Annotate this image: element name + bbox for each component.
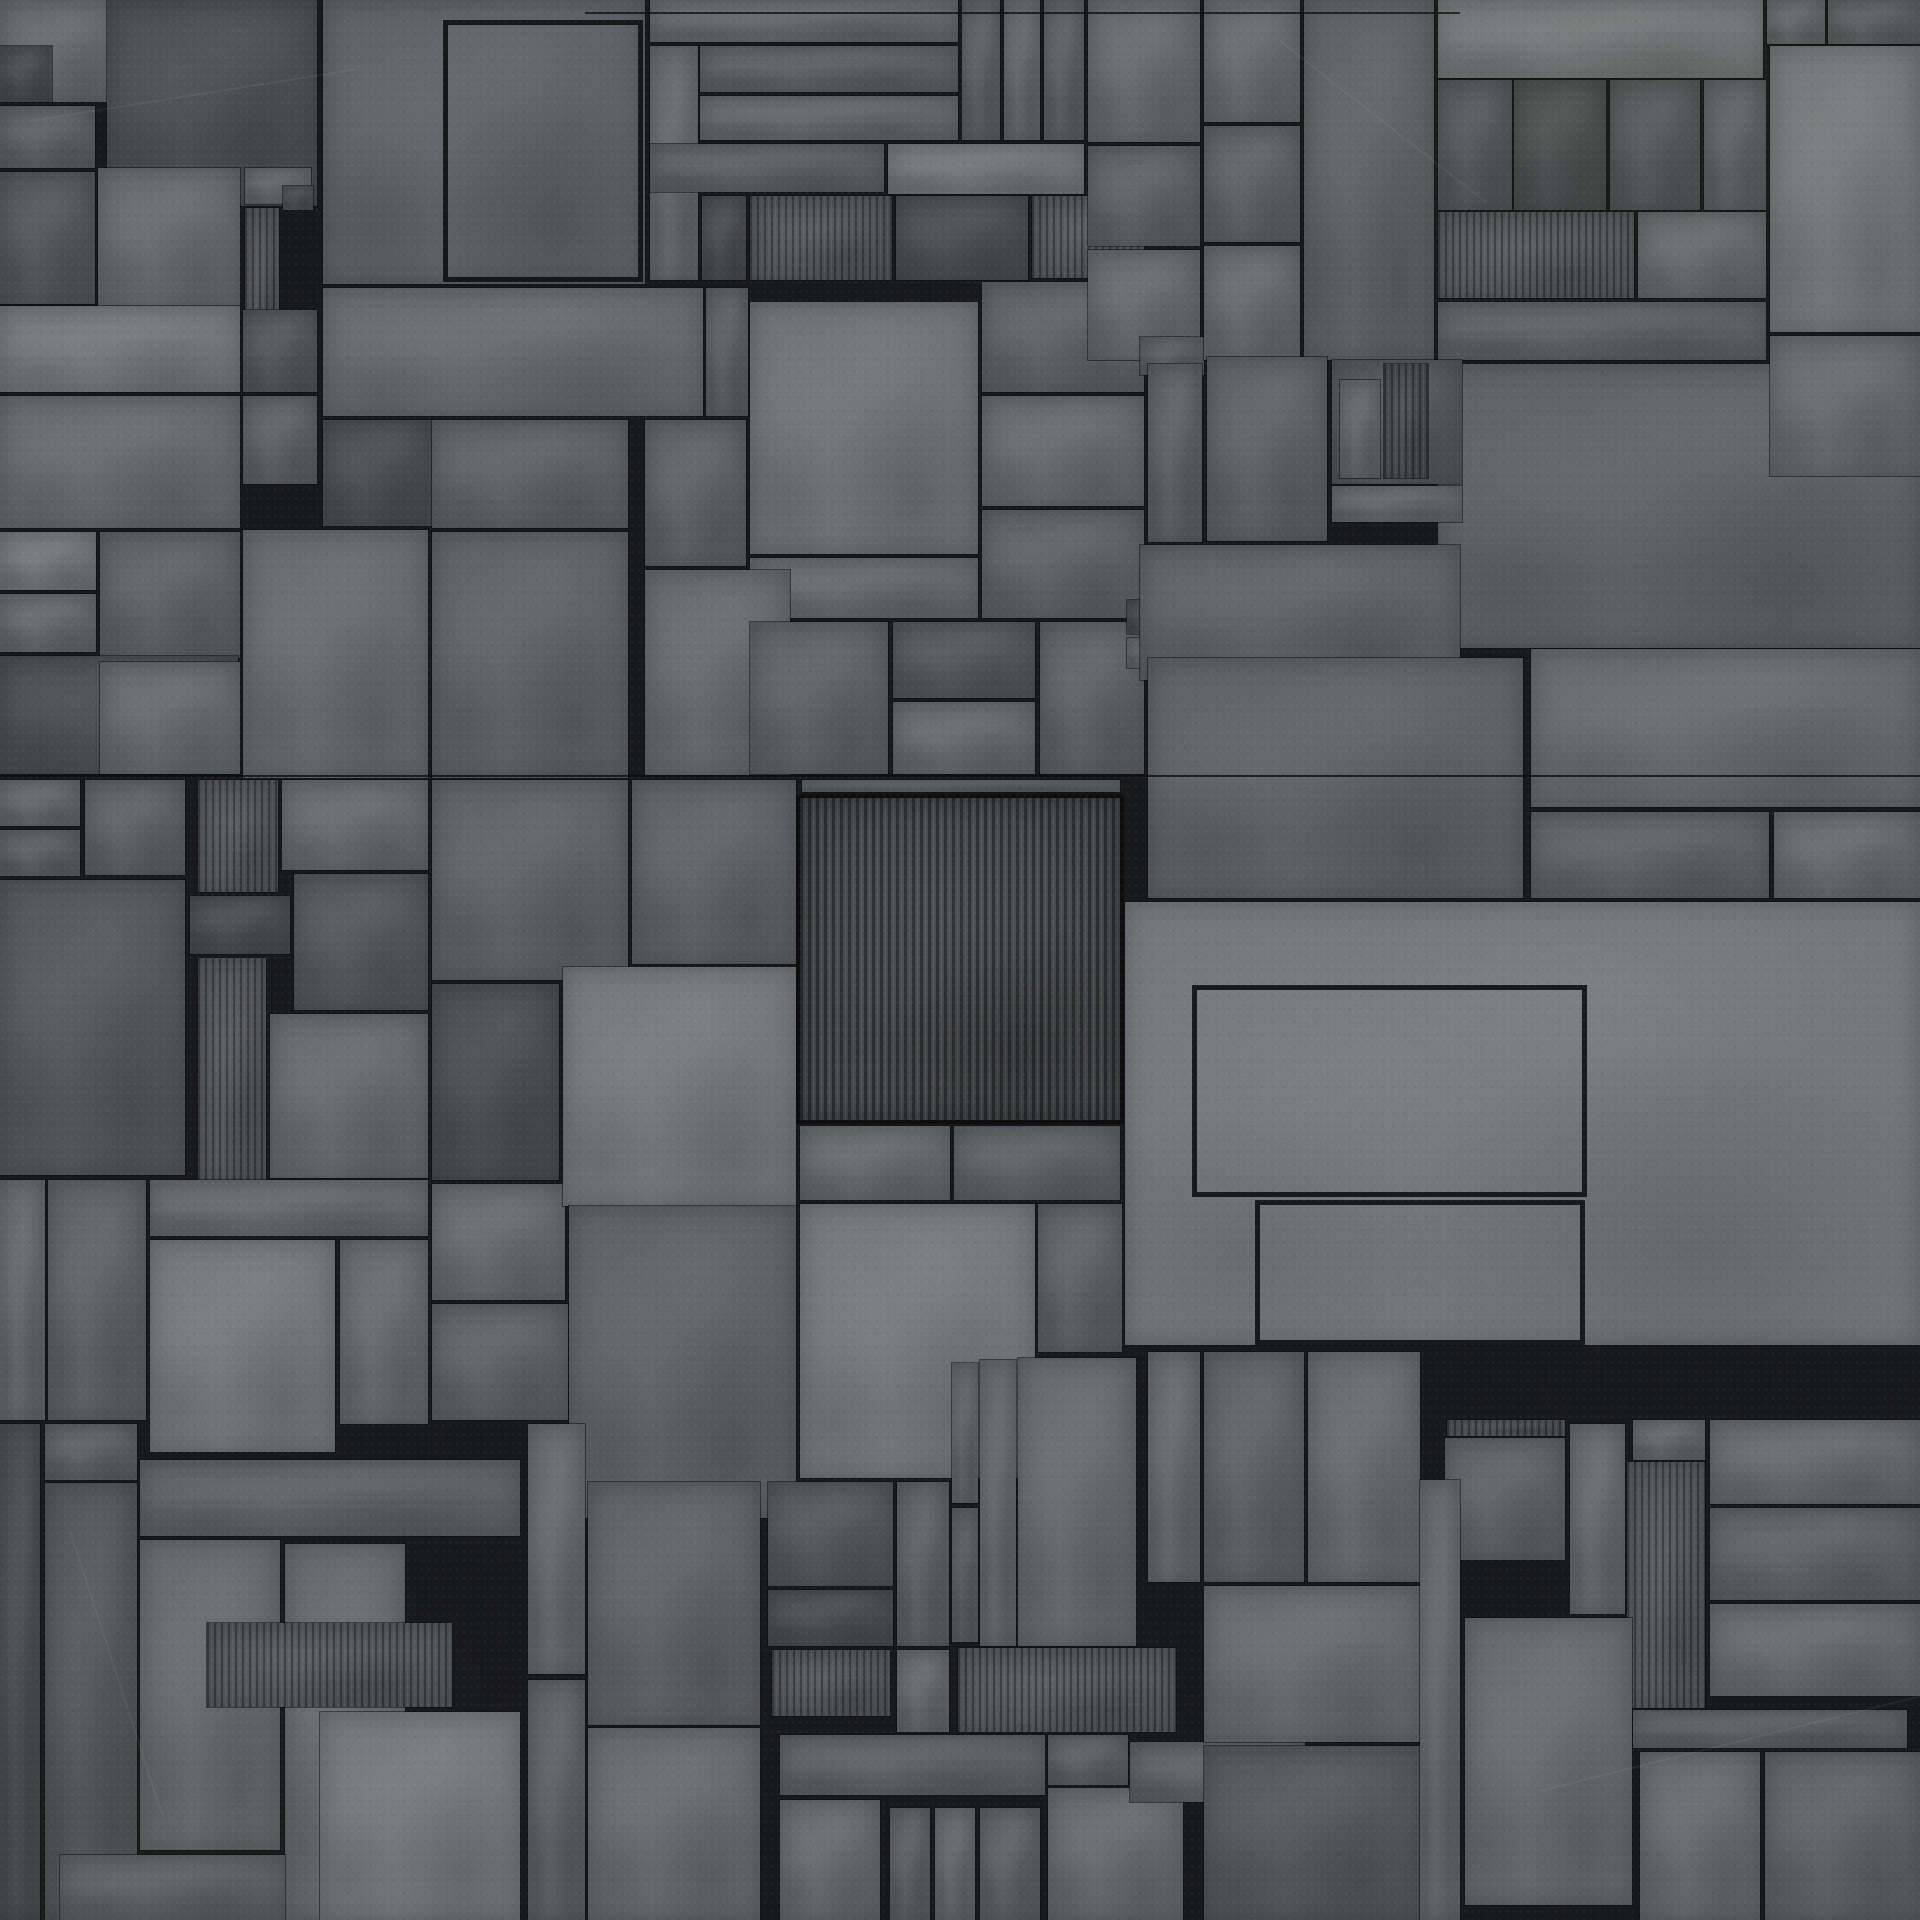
plate-panel	[980, 1360, 1016, 1646]
corrugated-panel	[800, 798, 1120, 1120]
plate-panel	[1570, 1424, 1625, 1614]
plate-panel	[48, 1180, 146, 1420]
corrugated-panel	[1384, 364, 1428, 478]
corrugated-panel	[958, 1648, 1176, 1732]
plate-panel	[243, 310, 317, 392]
plate-panel	[800, 1126, 950, 1200]
plate-panel	[569, 1206, 796, 1518]
plate-panel	[1765, 1752, 1920, 1920]
plate-panel	[1148, 364, 1202, 542]
plate-panel	[0, 1424, 40, 1920]
plate-panel	[952, 1363, 978, 1503]
plate-panel	[150, 1180, 428, 1236]
plate-panel	[294, 874, 428, 1010]
plate-panel	[1438, 80, 1512, 210]
plate-panel	[563, 967, 796, 1206]
plate-panel	[768, 1482, 893, 1586]
plate-panel	[432, 780, 628, 980]
corrugated-panel	[1627, 1462, 1705, 1708]
plate-panel	[1308, 1352, 1420, 1582]
plate-panel	[1710, 1420, 1920, 1504]
corrugated-panel	[772, 1650, 890, 1716]
plate-panel	[1018, 1358, 1136, 1646]
plate-panel	[0, 880, 185, 1175]
plate-panel	[1048, 1788, 1183, 1920]
plate-panel	[1204, 126, 1300, 242]
corrugated-panel	[198, 958, 266, 1180]
plate-panel	[1531, 812, 1769, 898]
plate-panel	[270, 1014, 428, 1178]
plate-panel	[1207, 357, 1327, 541]
plate-panel	[432, 420, 628, 528]
plate-panel	[432, 1184, 565, 1300]
plate-panel	[645, 420, 746, 566]
plate-panel	[1148, 1352, 1200, 1582]
plate-panel	[1204, 1586, 1420, 1742]
plate-panel	[802, 780, 1120, 792]
plate-panel	[100, 532, 240, 658]
plate-panel	[282, 780, 428, 870]
plate-panel	[45, 1424, 137, 1480]
plate-panel	[0, 396, 240, 528]
seam-line	[0, 775, 1920, 777]
plate-panel	[1704, 80, 1766, 210]
plate-panel	[1340, 380, 1380, 478]
plate-panel	[1004, 0, 1040, 140]
plate-panel	[0, 830, 80, 876]
plate-panel	[0, 532, 96, 590]
plate-panel	[780, 1735, 1045, 1795]
plate-panel	[893, 622, 1035, 698]
plate-panel	[0, 780, 80, 826]
plate-panel	[1204, 246, 1300, 360]
plate-panel	[1640, 1752, 1760, 1920]
plate-panel	[1044, 0, 1084, 140]
plate-panel	[706, 288, 748, 416]
plate-panel	[243, 530, 428, 778]
plate-panel	[0, 594, 96, 652]
plate-panel	[1710, 1508, 1920, 1600]
plate-panel	[432, 532, 628, 778]
plate-panel	[1148, 658, 1523, 898]
plate-panel	[1828, 0, 1920, 44]
seam-line	[585, 12, 1460, 14]
plate-panel	[0, 306, 240, 392]
plate-panel	[60, 1855, 285, 1920]
plate-panel	[1204, 1746, 1420, 1920]
plate-panel	[700, 96, 958, 140]
plate-panel	[650, 144, 884, 192]
plate-panel	[888, 144, 1084, 194]
plate-panel	[0, 46, 52, 102]
plate-panel	[0, 1180, 45, 1420]
plate-panel	[893, 702, 1035, 774]
plate-panel	[1088, 146, 1200, 246]
plate-panel	[1531, 649, 1920, 807]
plate-panel	[780, 1800, 880, 1920]
plate-panel	[0, 172, 95, 304]
corrugated-panel	[750, 196, 892, 280]
plate-panel	[243, 396, 317, 484]
plate-panel	[323, 288, 703, 416]
plate-panel	[1514, 80, 1606, 210]
corrugated-panel	[1447, 1420, 1565, 1436]
plate-panel	[1204, 0, 1300, 122]
plate-panel	[702, 196, 746, 280]
plate-panel	[1770, 46, 1920, 332]
plate-panel	[100, 662, 240, 774]
plate-panel	[1204, 1352, 1304, 1582]
plate-panel	[588, 1728, 760, 1920]
plate-panel	[982, 510, 1144, 618]
corrugated-panel	[207, 1623, 452, 1707]
panel-inset-frame	[1192, 985, 1587, 1197]
plate-panel	[1048, 1735, 1128, 1785]
plate-panel	[588, 1482, 760, 1725]
plate-panel	[768, 1590, 893, 1646]
plate-panel	[980, 1808, 1040, 1920]
plate-panel	[340, 1240, 428, 1424]
plate-panel	[0, 106, 95, 168]
plate-panel	[632, 780, 796, 964]
plate-panel	[897, 1482, 949, 1646]
plate-panel	[1633, 1710, 1907, 1748]
plate-panel	[750, 302, 978, 554]
plate-panel	[323, 420, 432, 526]
plate-panel	[700, 46, 958, 92]
plate-panel	[1610, 80, 1700, 210]
plate-panel	[1638, 212, 1766, 298]
plate-panel	[432, 984, 559, 1180]
plate-panel	[1038, 1204, 1122, 1352]
plate-panel	[140, 1460, 520, 1536]
plate-panel	[528, 1680, 585, 1920]
plate-panel	[1445, 1438, 1565, 1560]
plate-panel	[750, 622, 888, 774]
plate-panel	[320, 1712, 520, 1920]
plate-panel	[1332, 486, 1462, 522]
plate-panel	[1767, 0, 1825, 44]
corrugated-panel	[1438, 212, 1634, 298]
plate-panel	[1304, 0, 1434, 360]
plate-panel	[952, 1508, 978, 1642]
plate-panel	[1710, 1604, 1920, 1696]
plate-panel	[150, 1240, 335, 1452]
plate-panel	[528, 1424, 585, 1674]
plate-panel	[896, 196, 1028, 280]
plate-panel	[890, 1808, 930, 1920]
plate-panel	[283, 186, 313, 210]
plate-panel	[954, 1126, 1120, 1200]
panel-inset-frame	[443, 20, 643, 282]
plate-panel	[1633, 1420, 1705, 1460]
plate-panel	[98, 168, 240, 308]
panel-inset-frame	[1255, 1200, 1585, 1345]
plate-panel	[1088, 0, 1200, 142]
plate-panel	[1465, 1618, 1632, 1905]
plate-panel	[650, 0, 958, 42]
plate-panel	[962, 0, 1000, 140]
plate-panel	[190, 896, 290, 954]
plate-panel	[432, 1304, 568, 1420]
plate-panel	[1774, 812, 1920, 898]
plate-panel	[1438, 0, 1763, 78]
corrugated-panel	[198, 780, 278, 892]
plate-panel	[935, 1808, 975, 1920]
plate-panel	[897, 1650, 949, 1732]
plate-panel	[982, 396, 1144, 506]
panel-texture-canvas	[0, 0, 1920, 1920]
plate-panel	[1420, 1480, 1460, 1920]
plate-panel	[1770, 336, 1920, 476]
plate-panel	[1438, 302, 1766, 360]
plate-panel	[85, 780, 185, 875]
